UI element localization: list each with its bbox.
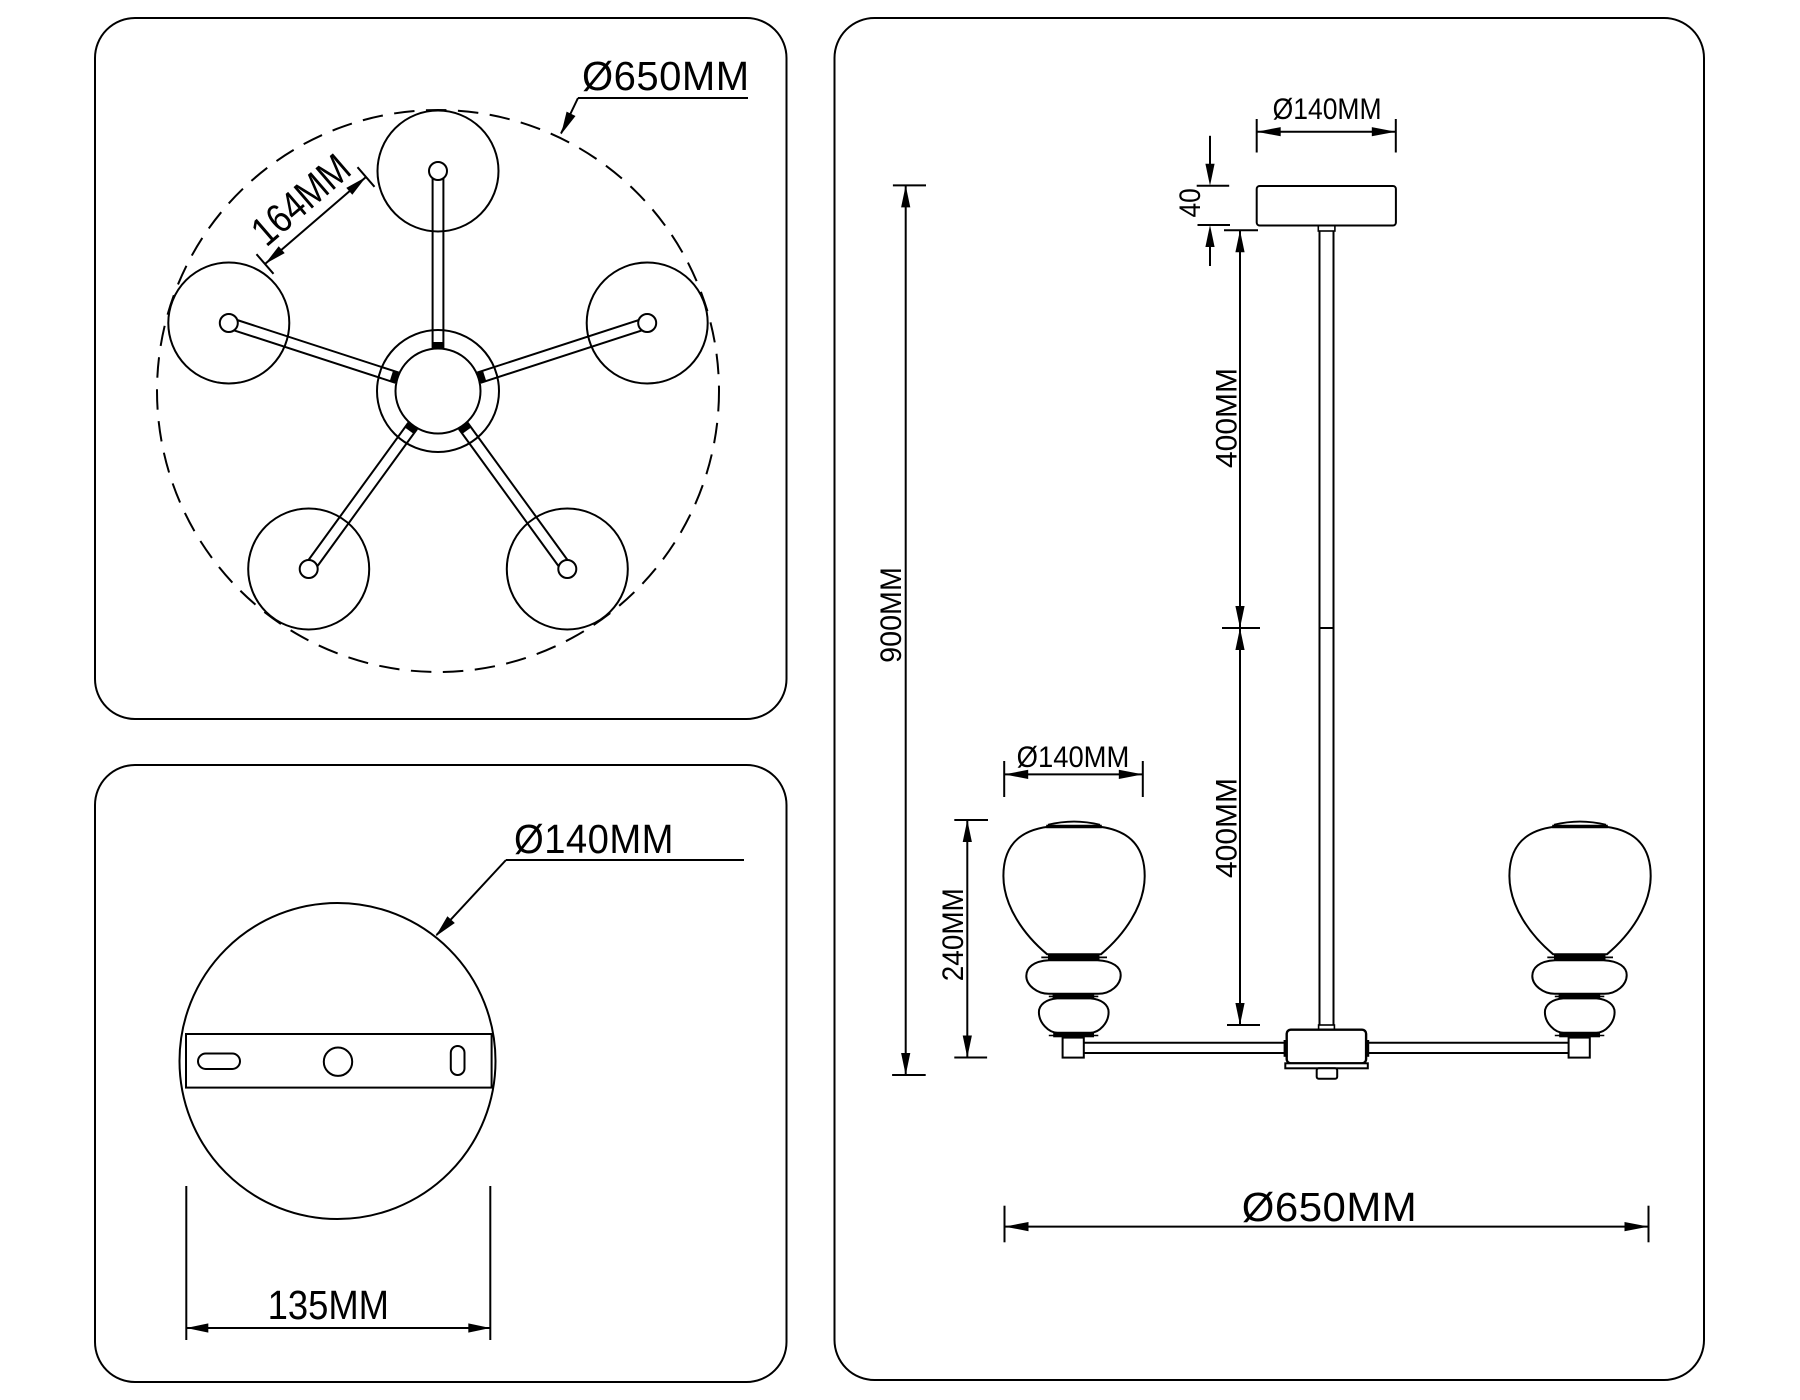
svg-text:Ø140MM: Ø140MM xyxy=(1273,93,1382,126)
svg-text:Ø140MM: Ø140MM xyxy=(514,816,674,862)
svg-text:Ø140MM: Ø140MM xyxy=(1017,741,1130,774)
svg-text:40: 40 xyxy=(1174,188,1207,217)
svg-text:900MM: 900MM xyxy=(875,567,908,663)
svg-text:Ø650MM: Ø650MM xyxy=(1242,1184,1418,1230)
svg-text:400MM: 400MM xyxy=(1211,778,1244,878)
svg-text:135MM: 135MM xyxy=(268,1282,389,1328)
svg-text:Ø650MM: Ø650MM xyxy=(582,53,750,99)
svg-text:240MM: 240MM xyxy=(937,888,970,981)
svg-text:400MM: 400MM xyxy=(1211,368,1244,468)
